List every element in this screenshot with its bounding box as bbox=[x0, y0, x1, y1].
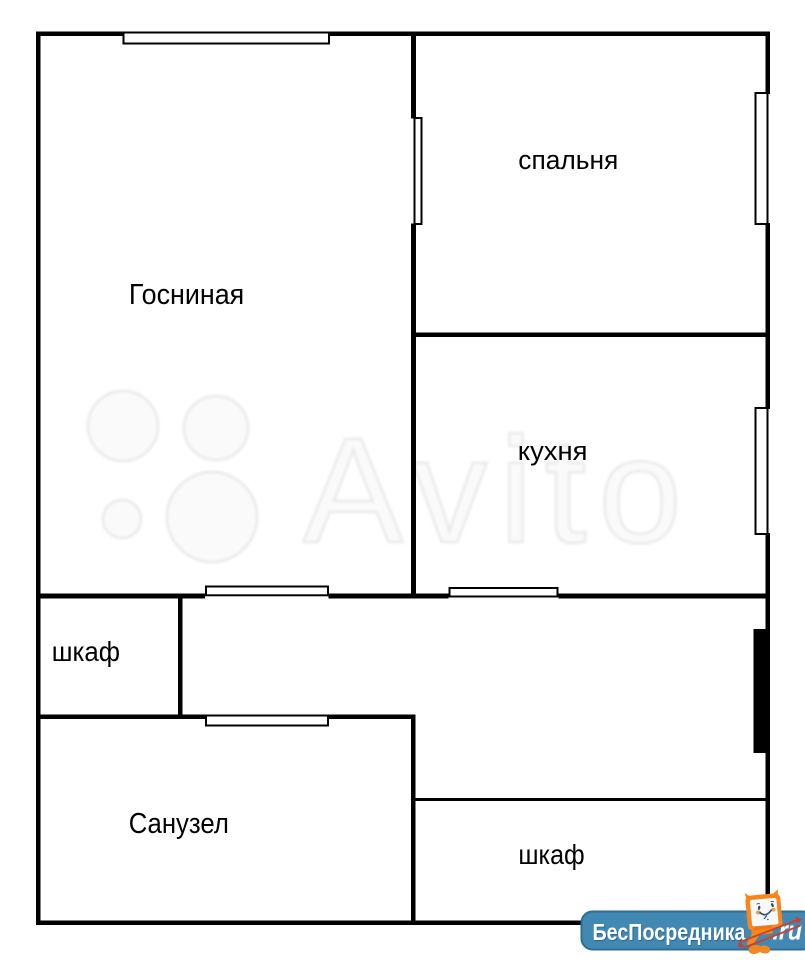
svg-text:спальня: спальня bbox=[518, 145, 618, 175]
svg-text:шкаф: шкаф bbox=[518, 839, 584, 870]
svg-text:БесПосредника: БесПосредника bbox=[593, 919, 747, 945]
svg-text:Госниная: Госниная bbox=[129, 279, 244, 311]
svg-text:кухня: кухня bbox=[518, 436, 588, 466]
svg-text:Санузел: Санузел bbox=[129, 808, 229, 840]
svg-text:шкаф: шкаф bbox=[52, 636, 120, 667]
svg-text:Avito: Avito bbox=[303, 406, 694, 574]
